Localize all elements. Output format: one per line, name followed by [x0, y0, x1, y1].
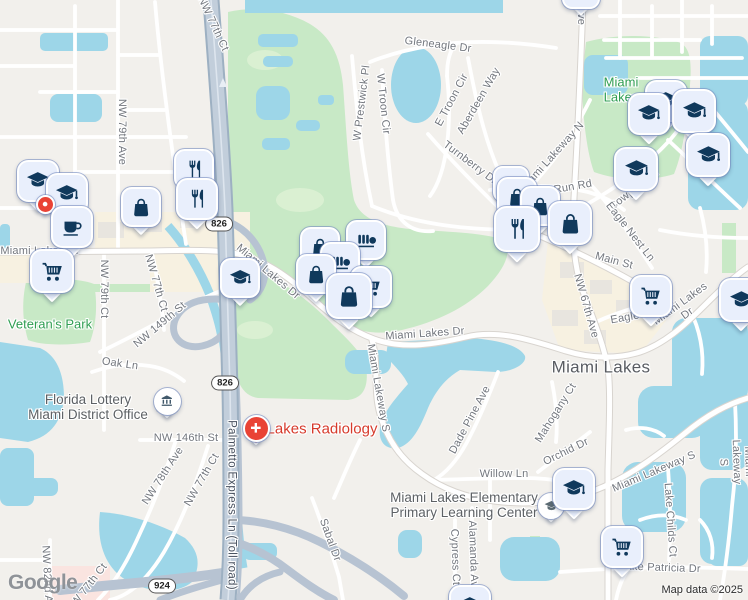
hospital-icon — [243, 415, 270, 442]
graduation-cap-pin[interactable] — [614, 147, 658, 191]
coffee-cup-pin[interactable] — [51, 206, 93, 248]
graduation-cap-pin[interactable] — [553, 468, 595, 510]
shopping-cart-icon — [601, 526, 643, 568]
shopping-cart-icon — [630, 275, 672, 317]
graduation-cap-pin[interactable] — [628, 93, 670, 135]
graduation-cap-icon — [220, 258, 260, 298]
map-attribution: Map data ©2025 — [662, 584, 744, 596]
museum-pin[interactable] — [154, 388, 181, 415]
graduation-cap-pin[interactable] — [686, 133, 730, 177]
shopping-cart-pin[interactable] — [630, 275, 672, 317]
graduation-cap-pin[interactable] — [719, 278, 748, 322]
shopping-bag-pin[interactable] — [121, 187, 161, 227]
graduation-cap-icon — [686, 133, 730, 177]
graduation-cap-icon — [553, 468, 595, 510]
shopping-bag-icon — [548, 201, 592, 245]
graduation-cap-icon — [449, 585, 491, 600]
map-canvas[interactable]: NW 77th CtNW 79th AveGleneagle DrW Prest… — [0, 0, 748, 600]
graduation-cap-icon — [628, 93, 670, 135]
graduation-cap-icon — [562, 0, 600, 9]
route-shield: 826 — [211, 376, 239, 391]
graduation-cap-pin[interactable] — [449, 585, 491, 600]
museum-icon — [154, 388, 181, 415]
shopping-cart-icon — [30, 249, 74, 293]
shopping-bag-icon — [326, 273, 372, 319]
shopping-bag-pin[interactable] — [548, 201, 592, 245]
coffee-cup-icon — [51, 206, 93, 248]
graduation-cap-icon — [672, 89, 716, 133]
restaurant-pin[interactable] — [176, 178, 218, 220]
graduation-cap-pin[interactable] — [672, 89, 716, 133]
graduation-cap-pin[interactable] — [562, 0, 600, 9]
hospital-pin[interactable] — [243, 415, 270, 442]
restaurant-icon — [176, 178, 218, 220]
restaurant-icon — [494, 206, 540, 252]
restaurant-pin[interactable] — [494, 206, 540, 252]
shopping-cart-pin[interactable] — [601, 526, 643, 568]
shopping-bag-icon — [121, 187, 161, 227]
shopping-bag-pin[interactable] — [326, 273, 372, 319]
google-logo[interactable]: Google — [8, 571, 77, 595]
route-shield: 924 — [148, 579, 176, 594]
graduation-cap-pin[interactable] — [220, 258, 260, 298]
shopping-cart-pin[interactable] — [30, 249, 74, 293]
graduation-cap-icon — [614, 147, 658, 191]
graduation-cap-icon — [719, 278, 748, 322]
